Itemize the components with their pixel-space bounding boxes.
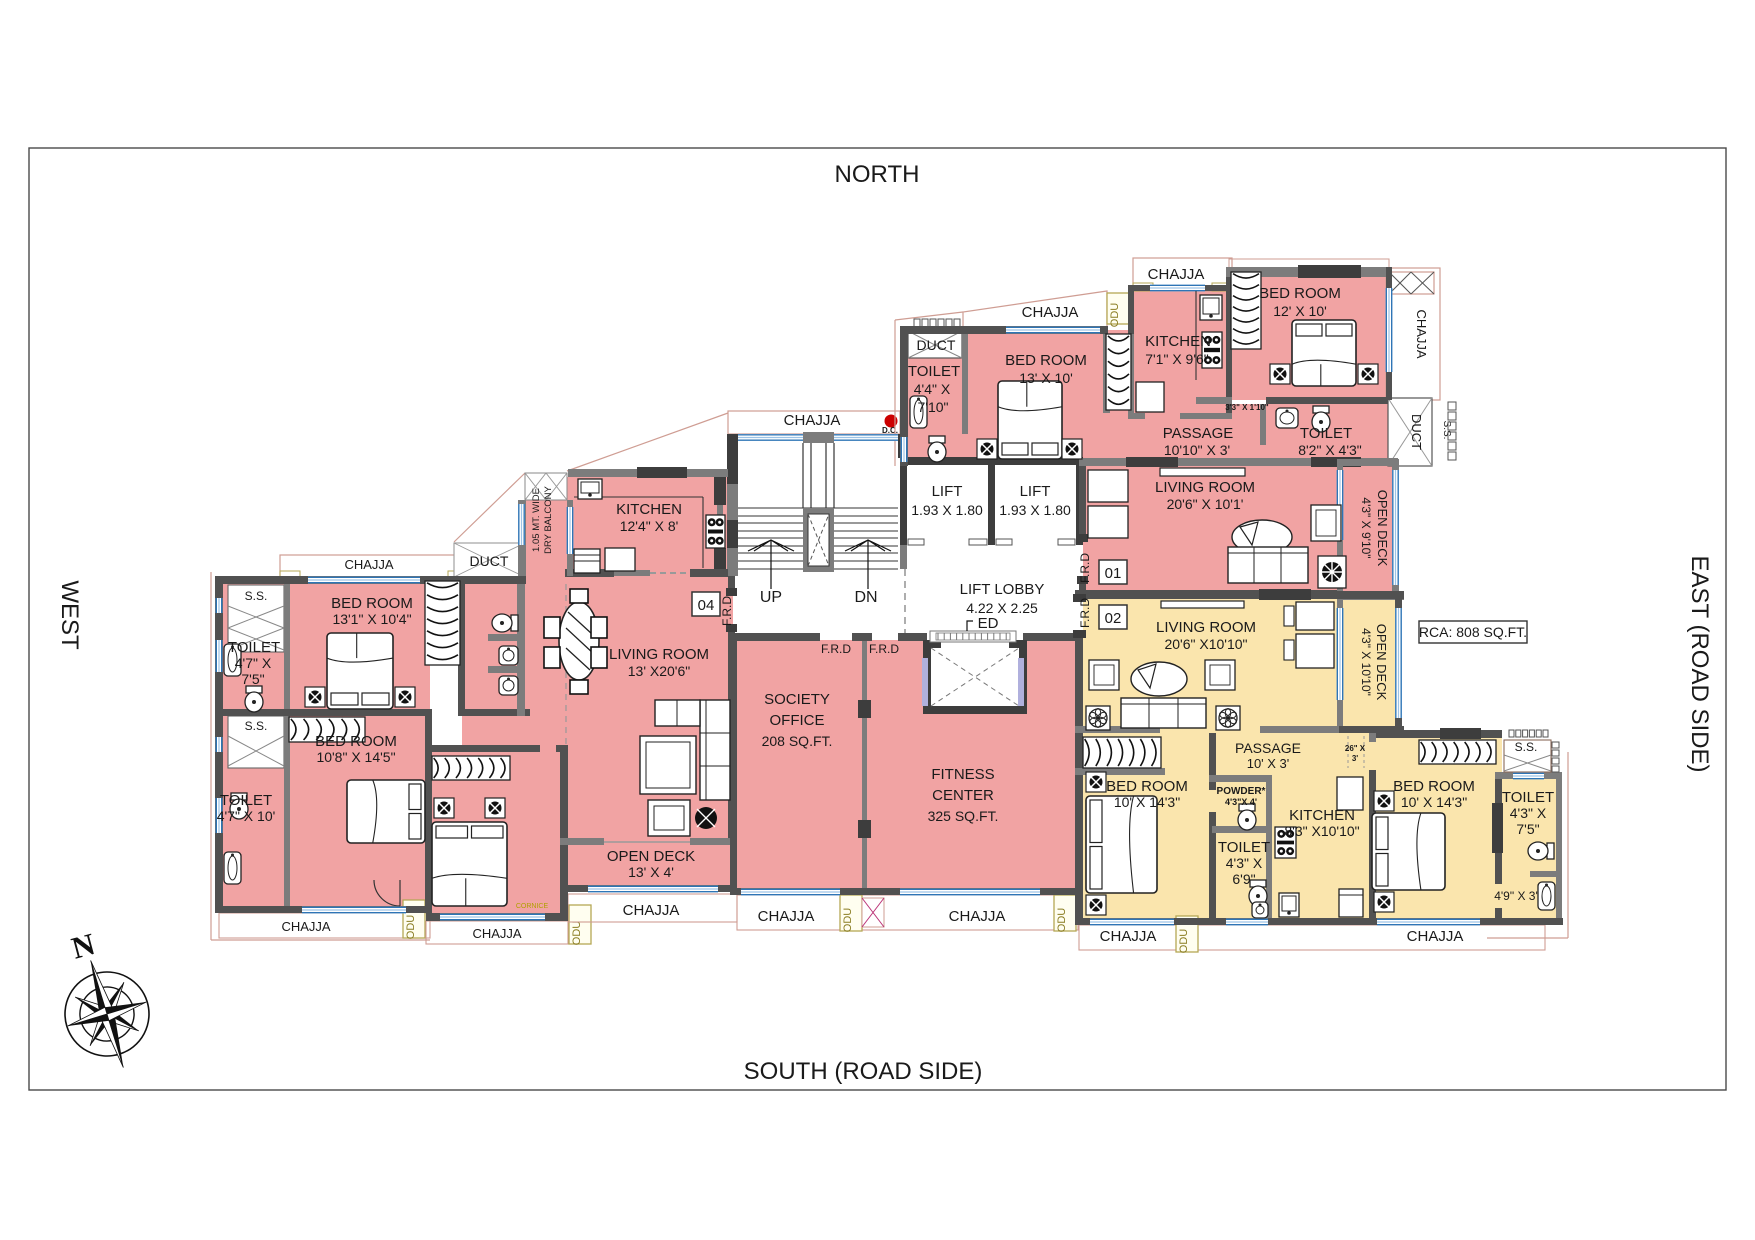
svg-text:CHAJJA: CHAJJA [758, 908, 815, 925]
svg-text:SOUTH (ROAD SIDE): SOUTH (ROAD SIDE) [744, 1058, 983, 1085]
svg-text:26" X: 26" X [1345, 744, 1366, 753]
svg-text:TOILET: TOILET [228, 639, 280, 656]
svg-text:DUCT: DUCT [917, 337, 956, 353]
svg-text:4'7" X 10': 4'7" X 10' [217, 808, 276, 824]
svg-text:DRY BALCONY: DRY BALCONY [543, 485, 554, 553]
svg-text:13'1" X 10'4": 13'1" X 10'4" [332, 611, 411, 627]
svg-text:4'3" X 10'10": 4'3" X 10'10" [1359, 628, 1373, 696]
svg-text:CHAJJA: CHAJJA [949, 908, 1006, 925]
svg-text:02: 02 [1105, 610, 1122, 627]
svg-text:ODU: ODU [1056, 908, 1068, 933]
svg-text:CHAJJA: CHAJJA [281, 919, 330, 934]
svg-text:13' X 10': 13' X 10' [1019, 370, 1073, 386]
svg-text:4'3" X: 4'3" X [1226, 855, 1263, 871]
svg-text:DUCT: DUCT [1409, 414, 1424, 450]
svg-text:10' X 14'3": 10' X 14'3" [1114, 794, 1180, 810]
svg-text:OFFICE: OFFICE [770, 712, 825, 729]
svg-text:BED ROOM: BED ROOM [331, 595, 413, 612]
svg-text:4.22 X 2.25: 4.22 X 2.25 [966, 600, 1038, 616]
svg-text:OPEN DECK: OPEN DECK [607, 848, 695, 865]
svg-text:DUCT: DUCT [470, 553, 509, 569]
svg-text:F.R.D: F.R.D [821, 642, 851, 656]
svg-text:10' X 14'3": 10' X 14'3" [1401, 794, 1467, 810]
svg-text:EAST (ROAD SIDE): EAST (ROAD SIDE) [1686, 556, 1713, 773]
svg-text:4'7" X: 4'7" X [235, 655, 272, 671]
svg-text:TOILET: TOILET [220, 792, 272, 809]
svg-text:04: 04 [698, 597, 715, 614]
svg-text:LIVING ROOM: LIVING ROOM [1155, 479, 1255, 496]
svg-text:S.S.: S.S. [245, 719, 268, 733]
svg-text:F.R.D: F.R.D [1078, 553, 1092, 583]
svg-text:7'1" X 9'6": 7'1" X 9'6" [1145, 351, 1209, 367]
svg-text:CHAJJA: CHAJJA [784, 412, 841, 429]
svg-text:ODU: ODU [571, 921, 583, 946]
svg-text:LIVING ROOM: LIVING ROOM [609, 646, 709, 663]
svg-text:ODU: ODU [1178, 929, 1190, 954]
svg-text:4'4" X: 4'4" X [914, 381, 951, 397]
svg-text:UP: UP [760, 589, 782, 606]
svg-text:12' X 10': 12' X 10' [1273, 303, 1327, 319]
svg-text:TOILET: TOILET [1502, 789, 1554, 806]
svg-text:4'3" X: 4'3" X [1510, 805, 1547, 821]
svg-text:CHAJJA: CHAJJA [623, 902, 680, 919]
svg-text:TOILET: TOILET [908, 363, 960, 380]
svg-text:BED ROOM: BED ROOM [1259, 285, 1341, 302]
svg-text:POWDER*: POWDER* [1217, 786, 1266, 797]
svg-text:BED ROOM: BED ROOM [315, 733, 397, 750]
svg-text:8'2" X 4'3": 8'2" X 4'3" [1298, 442, 1362, 458]
svg-text:NORTH: NORTH [835, 161, 920, 188]
svg-text:1.05 MT. WIDE: 1.05 MT. WIDE [531, 488, 542, 552]
svg-text:LIFT: LIFT [932, 483, 963, 500]
svg-text:7'5": 7'5" [1516, 821, 1539, 837]
svg-text:LIFT LOBBY: LIFT LOBBY [960, 581, 1045, 598]
svg-text:208 SQ.FT.: 208 SQ.FT. [762, 733, 833, 749]
svg-text:DN: DN [854, 589, 877, 606]
svg-text:KITCHEN: KITCHEN [1289, 807, 1355, 824]
svg-text:OPEN DECK: OPEN DECK [1374, 624, 1389, 701]
svg-text:CHAJJA: CHAJJA [344, 557, 393, 572]
svg-text:CHAJJA: CHAJJA [1407, 928, 1464, 945]
svg-text:10'8" X 14'5": 10'8" X 14'5" [316, 749, 395, 765]
svg-text:CORNICE: CORNICE [516, 903, 549, 910]
svg-text:7'10": 7'10" [917, 399, 948, 415]
svg-text:ODU: ODU [405, 915, 417, 940]
svg-text:10'10" X 3': 10'10" X 3' [1164, 442, 1230, 458]
svg-text:13' X 4': 13' X 4' [628, 864, 674, 880]
svg-text:TOILET: TOILET [1218, 839, 1270, 856]
svg-text:TOILET: TOILET [1300, 425, 1352, 442]
svg-text:1.93 X 1.80: 1.93 X 1.80 [999, 502, 1071, 518]
svg-text:S.S.: S.S. [245, 589, 268, 603]
svg-text:20'6" X10'10": 20'6" X10'10" [1164, 636, 1247, 652]
svg-text:4'3"X 4': 4'3"X 4' [1225, 797, 1257, 807]
svg-text:CHAJJA: CHAJJA [1414, 309, 1429, 358]
svg-text:PASSAGE: PASSAGE [1163, 425, 1234, 442]
svg-text:F.R.D: F.R.D [869, 642, 899, 656]
svg-text:F.R.D: F.R.D [1078, 598, 1092, 628]
svg-text:12'4" X 8': 12'4" X 8' [620, 518, 679, 534]
svg-text:10' X 3': 10' X 3' [1247, 756, 1290, 771]
svg-text:CENTER: CENTER [932, 787, 994, 804]
svg-text:F.R.D: F.R.D [720, 596, 734, 626]
svg-text:ODU: ODU [842, 908, 854, 933]
svg-text:OPEN DECK: OPEN DECK [1375, 490, 1390, 567]
svg-text:3'3" X 1'10": 3'3" X 1'10" [1225, 403, 1269, 412]
svg-text:LIFT: LIFT [1020, 483, 1051, 500]
svg-text:325 SQ.FT.: 325 SQ.FT. [928, 808, 999, 824]
svg-text:KITCHEN: KITCHEN [616, 501, 682, 518]
svg-text:SOCIETY: SOCIETY [764, 691, 830, 708]
svg-text:8'3" X10'10": 8'3" X10'10" [1284, 823, 1359, 839]
svg-text:13' X20'6": 13' X20'6" [628, 663, 691, 679]
svg-text:CHAJJA: CHAJJA [1022, 304, 1079, 321]
svg-text:S.S.: S.S. [1515, 740, 1538, 754]
svg-text:20'6" X 10'1': 20'6" X 10'1' [1167, 496, 1244, 512]
svg-text:ODU: ODU [1109, 303, 1121, 328]
svg-text:BED ROOM: BED ROOM [1106, 778, 1188, 795]
svg-text:PASSAGE: PASSAGE [1235, 740, 1301, 756]
svg-text:01: 01 [1105, 565, 1122, 582]
svg-text:KITCHEN: KITCHEN [1145, 333, 1211, 350]
svg-text:RCA: 808 SQ.FT.: RCA: 808 SQ.FT. [1419, 624, 1527, 640]
svg-text:ED: ED [978, 615, 999, 632]
svg-text:FITNESS: FITNESS [931, 766, 994, 783]
svg-text:CHAJJA: CHAJJA [472, 926, 521, 941]
svg-text:6'9": 6'9" [1232, 871, 1255, 887]
svg-text:7'5": 7'5" [241, 671, 264, 687]
svg-text:BED ROOM: BED ROOM [1005, 352, 1087, 369]
svg-text:LIVING ROOM: LIVING ROOM [1156, 619, 1256, 636]
svg-text:CHAJJA: CHAJJA [1148, 266, 1205, 283]
svg-text:4'3" X 9'10": 4'3" X 9'10" [1359, 497, 1373, 558]
svg-text:1.93 X 1.80: 1.93 X 1.80 [911, 502, 983, 518]
svg-text:4'9" X 3': 4'9" X 3' [1494, 889, 1538, 903]
svg-text:BED ROOM: BED ROOM [1393, 778, 1475, 795]
svg-text:WEST: WEST [56, 580, 83, 650]
svg-text:CHAJJA: CHAJJA [1100, 928, 1157, 945]
svg-text:3': 3' [1352, 754, 1358, 763]
